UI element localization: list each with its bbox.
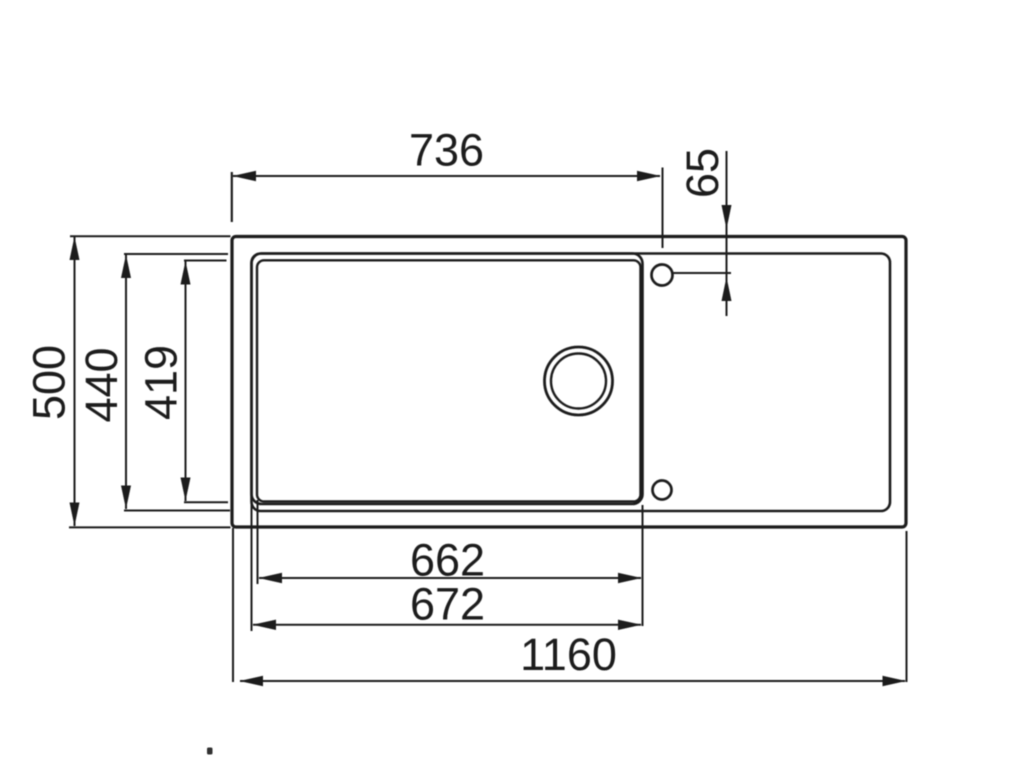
svg-text:440: 440 bbox=[76, 347, 127, 422]
svg-text:1160: 1160 bbox=[520, 629, 617, 680]
svg-text:419: 419 bbox=[136, 345, 187, 420]
svg-text:65: 65 bbox=[677, 148, 728, 198]
svg-text:672: 672 bbox=[410, 579, 485, 630]
svg-text:500: 500 bbox=[24, 345, 75, 420]
svg-text:736: 736 bbox=[409, 125, 484, 176]
